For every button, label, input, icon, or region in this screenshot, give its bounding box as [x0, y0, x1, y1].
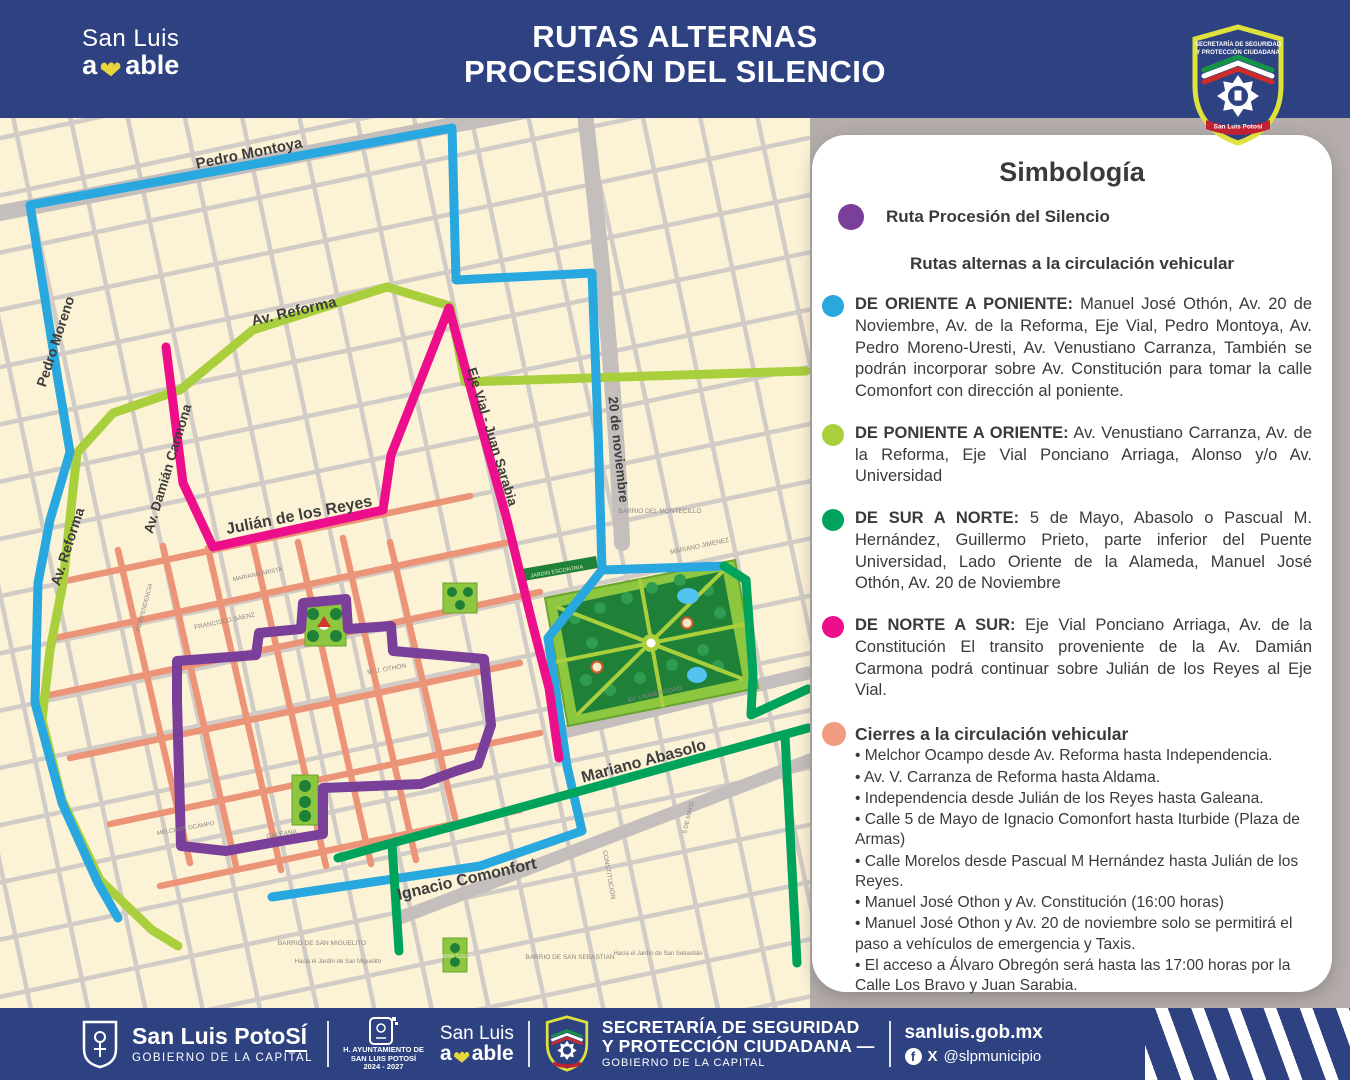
contact-block: sanluis.gob.mx f X @slpmunicipio: [905, 1022, 1043, 1066]
heart-m-icon: [452, 1047, 472, 1068]
closure-item: Av. V. Carranza de Reforma hasta Aldama.: [855, 768, 1312, 788]
slp-crest-icon: [80, 1019, 120, 1069]
legend-entry-norte-sur: DE NORTE A SUR: Eje Vial Ponciano Arriag…: [855, 615, 1312, 702]
footer-amable-line2: a able: [440, 1043, 514, 1064]
legend-title: Simbología: [812, 157, 1332, 188]
secretaria-line1: SECRETARÍA DE SEGURIDAD: [602, 1018, 875, 1037]
footer-divider: [327, 1021, 329, 1067]
closure-item: Melchor Ocampo desde Av. Reforma hasta I…: [855, 746, 1312, 766]
header-bar: San Luis a able RUTAS ALTERNAS PROCESIÓN…: [0, 0, 1350, 118]
ayuntamiento-logo: H. AYUNTAMIENTO DE SAN LUIS POTOSÍ 2024 …: [343, 1016, 424, 1072]
minor-label: Hacia el Jardín de San Miguelito: [295, 959, 382, 965]
secretaria-logo: SECRETARÍA DE SEGURIDAD Y PROTECCIÓN CIU…: [544, 1015, 875, 1073]
legend-entry-poniente-oriente: DE PONIENTE A ORIENTE: Av. Venustiano Ca…: [855, 423, 1312, 488]
footer-amable-logo: San Luis a able: [440, 1024, 514, 1064]
closure-item: Calle Morelos desde Pascual M Hernández …: [855, 852, 1312, 893]
slp-name: San Luis PotoSÍ: [132, 1025, 313, 1048]
route-bullet-icon: [822, 295, 844, 317]
closures-title: Cierres a la circulación vehicular: [855, 724, 1312, 745]
facebook-icon: f: [905, 1048, 922, 1065]
title-line2: PROCESIÓN DEL SILENCIO: [0, 55, 1350, 90]
route-name: DE NORTE A SUR:: [855, 616, 1015, 634]
route-name: DE SUR A NORTE:: [855, 509, 1019, 527]
police-badge: SECRETARÍA DE SEGURIDAD Y PROTECCIÓN CIU…: [1188, 20, 1288, 157]
legend-entry-oriente-poniente: DE ORIENTE A PONIENTE: Manuel José Othón…: [855, 294, 1312, 403]
slp-name-suffix: SÍ: [285, 1023, 307, 1052]
city-map: Pedro Montoya Pedro Moreno Av. Reforma A…: [0, 118, 810, 1008]
minor-label: BARRIO DEL MONTECILLO: [618, 508, 701, 515]
route-bullet-icon: [822, 616, 844, 638]
legend-panel: Simbología Ruta Procesión del Silencio R…: [812, 135, 1332, 992]
slp-name-prefix: San Luis Poto: [132, 1023, 285, 1049]
footer-amable-prefix: a: [440, 1043, 452, 1064]
infographic: San Luis a able RUTAS ALTERNAS PROCESIÓN…: [0, 0, 1350, 1080]
closure-item: Manuel José Othon y Av. Constitución (16…: [855, 893, 1312, 913]
legend-procession-row: Ruta Procesión del Silencio: [838, 204, 1332, 230]
ayuntamiento-crest-icon: [366, 1016, 400, 1046]
footer-amable-suffix: able: [472, 1043, 514, 1064]
closure-item: Manuel José Othon y Av. 20 de noviembre …: [855, 914, 1312, 955]
procession-label: Ruta Procesión del Silencio: [886, 207, 1110, 227]
secretaria-caption: GOBIERNO DE LA CAPITAL: [602, 1058, 875, 1070]
plaza-de-armas: [305, 604, 346, 646]
badge-text-1: SECRETARÍA DE SEGURIDAD: [1195, 40, 1282, 48]
minor-label: JARDIN COLON: [436, 954, 474, 960]
footer-amable-line1: San Luis: [440, 1024, 514, 1043]
slp-gov-logo: San Luis PotoSÍ GOBIERNO DE LA CAPITAL: [80, 1019, 313, 1069]
social-handle: @slpmunicipio: [944, 1048, 1042, 1066]
footer-badge-icon: [544, 1015, 590, 1073]
route-name: DE ORIENTE A PONIENTE:: [855, 295, 1073, 313]
closures-bullet-icon: [822, 722, 846, 746]
minor-label: Hacia el Jardín de San Sebastián: [613, 951, 702, 957]
x-twitter-icon: X: [928, 1048, 938, 1066]
route-bullet-icon: [822, 424, 844, 446]
closure-item: Calle 5 de Mayo de Ignacio Comonfort has…: [855, 810, 1312, 851]
minor-label: BARRIO DE SAN MIGUELITO: [278, 940, 366, 947]
footer-bar: San Luis PotoSÍ GOBIERNO DE LA CAPITAL H…: [0, 1008, 1350, 1080]
route-bullet-icon: [822, 509, 844, 531]
procession-bullet-icon: [838, 204, 864, 230]
footer-divider: [528, 1021, 530, 1067]
star-emblem-icon: [1217, 75, 1259, 117]
closure-item: Independencia desde Julián de los Reyes …: [855, 789, 1312, 809]
title-line1: RUTAS ALTERNAS: [0, 20, 1350, 55]
legend-entry-sur-norte: DE SUR A NORTE: 5 de Mayo, Abasolo o Pas…: [855, 508, 1312, 595]
page-title: RUTAS ALTERNAS PROCESIÓN DEL SILENCIO: [0, 20, 1350, 89]
website-url: sanluis.gob.mx: [905, 1022, 1043, 1045]
diagonal-stripes-decoration: [1145, 1008, 1350, 1080]
secretaria-line2: Y PROTECCIÓN CIUDADANA —: [602, 1037, 875, 1056]
closures-section: Cierres a la circulación vehicular Melch…: [855, 724, 1312, 996]
ayuntamiento-line3: 2024 - 2027: [363, 1063, 403, 1072]
closure-item: El acceso a Álvaro Obregón será hasta la…: [855, 956, 1312, 997]
slp-caption: GOBIERNO DE LA CAPITAL: [132, 1052, 313, 1064]
badge-banner-text: San Luis Potosí: [1214, 124, 1263, 131]
legend-subtitle: Rutas alternas a la circulación vehicula…: [812, 254, 1332, 274]
minor-label: BARRIO DE SAN SEBASTIAN: [525, 954, 615, 961]
footer-divider: [889, 1021, 891, 1067]
route-name: DE PONIENTE A ORIENTE:: [855, 424, 1069, 442]
